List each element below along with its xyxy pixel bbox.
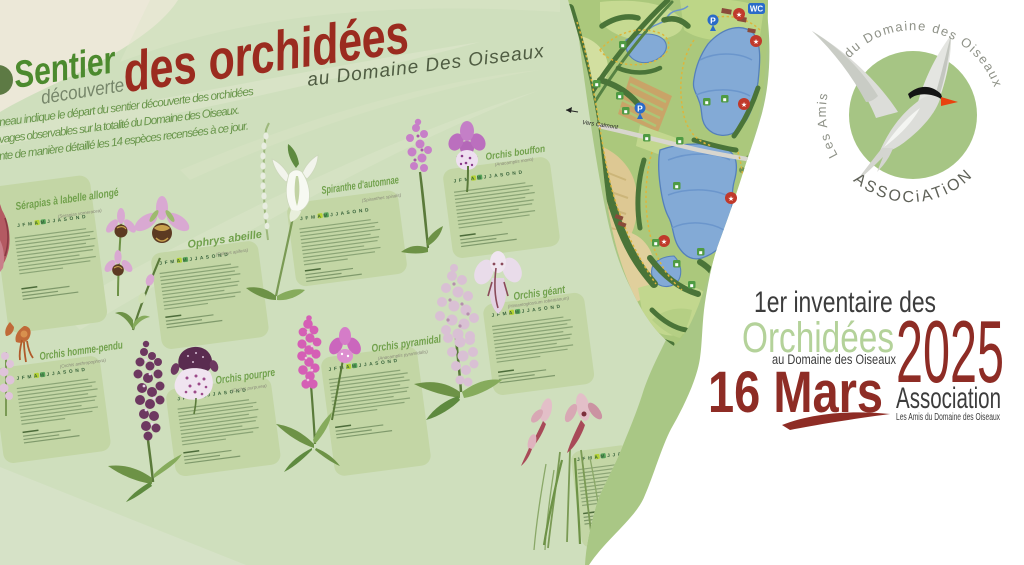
svg-text:★: ★ xyxy=(741,101,747,109)
svg-text:★: ★ xyxy=(753,38,759,46)
svg-text:Les Amis du Domaine des Oiseau: Les Amis du Domaine des Oiseaux xyxy=(896,412,1000,423)
svg-text:Association: Association xyxy=(896,382,1001,415)
svg-text:WC: WC xyxy=(750,5,764,14)
svg-text:★: ★ xyxy=(661,238,667,246)
svg-text:★: ★ xyxy=(728,195,734,203)
svg-text:★: ★ xyxy=(736,11,742,19)
svg-text:P: P xyxy=(637,104,643,114)
svg-text:P: P xyxy=(710,16,716,26)
